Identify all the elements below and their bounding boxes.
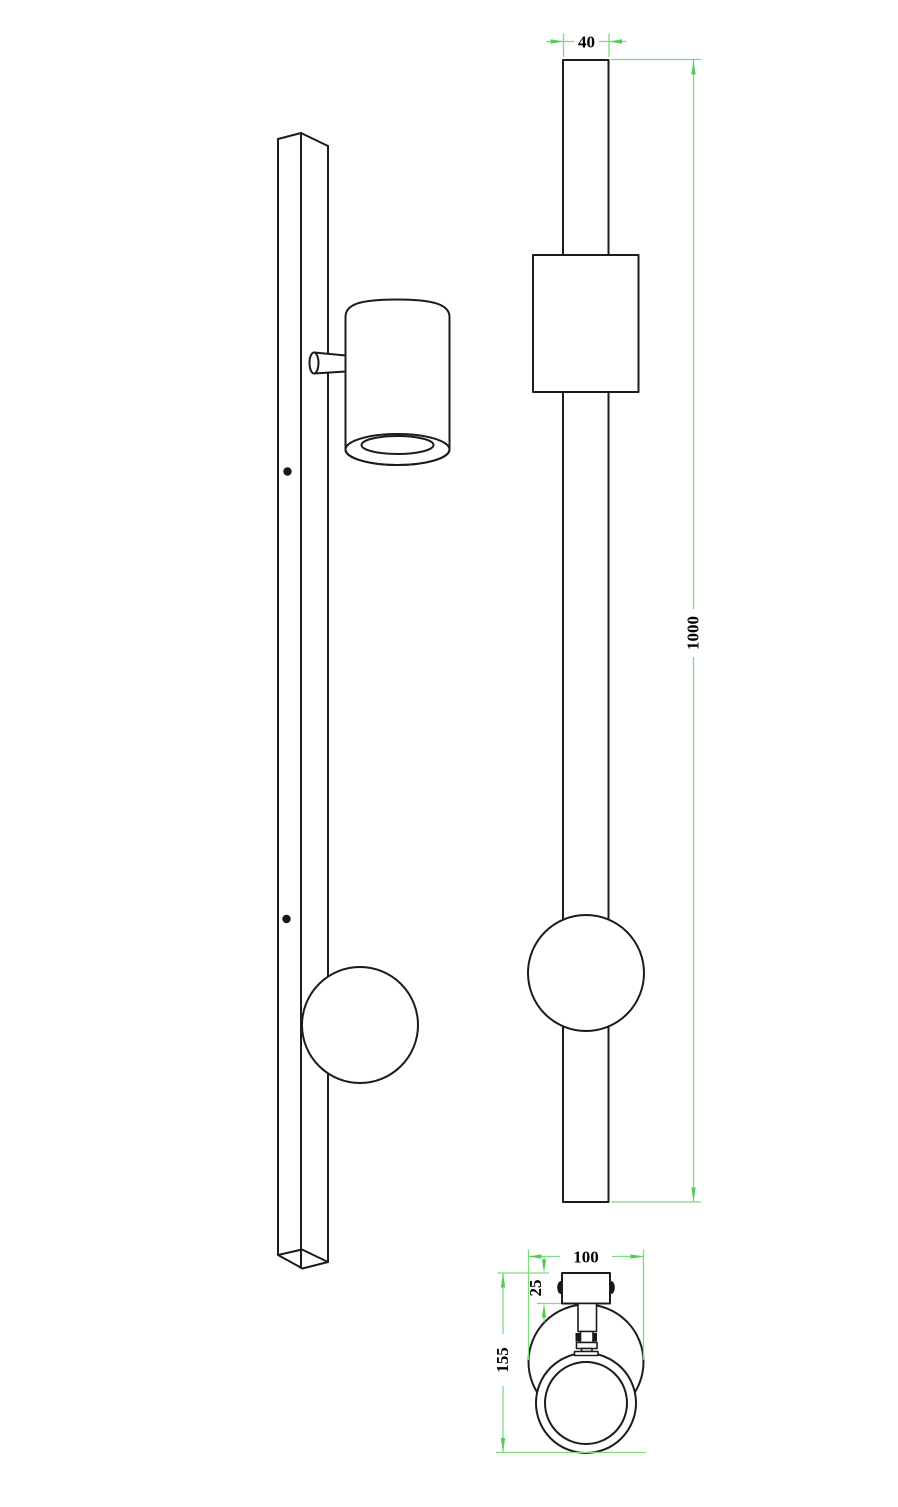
bar-section-top bbox=[562, 1273, 610, 1304]
arrowhead-down bbox=[542, 1260, 546, 1274]
collar bbox=[577, 1343, 598, 1349]
dim-text-155: 155 bbox=[493, 1347, 512, 1373]
dim-text-25: 25 bbox=[526, 1280, 545, 1297]
knuckle-screw-left bbox=[576, 1333, 581, 1342]
bar-top-edges bbox=[278, 133, 328, 146]
top-view bbox=[529, 1273, 644, 1453]
arrowhead-up bbox=[542, 1304, 546, 1318]
arrowhead-up bbox=[691, 60, 695, 75]
drawing-canvas: 40 1000 100 bbox=[0, 0, 898, 1507]
sphere-front bbox=[528, 915, 644, 1031]
front-view bbox=[528, 60, 644, 1202]
stem-shaft bbox=[578, 1304, 597, 1332]
dimension-bar-length: 1000 bbox=[611, 60, 703, 1203]
sphere-shade bbox=[302, 967, 418, 1083]
dimension-bar-width: 40 bbox=[546, 33, 627, 58]
arrowhead-right bbox=[631, 1254, 644, 1258]
technical-drawing: 40 1000 100 bbox=[0, 0, 898, 1507]
arrowhead-down bbox=[691, 1188, 695, 1203]
base-plate bbox=[575, 1352, 599, 1356]
joint-stem bbox=[575, 1304, 599, 1356]
dim-text-40: 40 bbox=[578, 33, 595, 52]
arrowhead-down bbox=[501, 1438, 505, 1453]
mounting-hole-lower bbox=[282, 915, 290, 923]
knuckle bbox=[581, 1332, 594, 1343]
ring-outer bbox=[536, 1353, 636, 1453]
perspective-view bbox=[278, 133, 450, 1269]
spot-head-front bbox=[533, 255, 639, 392]
bar-bottom-face bbox=[278, 1250, 328, 1269]
spot-cylinder-body bbox=[345, 300, 449, 466]
arrowhead-up bbox=[501, 1273, 505, 1288]
dim-text-100: 100 bbox=[573, 1248, 599, 1267]
arrowhead-left bbox=[609, 39, 622, 43]
dim-text-1000: 1000 bbox=[684, 616, 703, 650]
spot-arm-end-cap bbox=[310, 353, 319, 374]
arrowhead-left bbox=[529, 1254, 542, 1258]
mounting-hole-upper bbox=[283, 467, 291, 475]
arrowhead-right bbox=[551, 39, 564, 43]
